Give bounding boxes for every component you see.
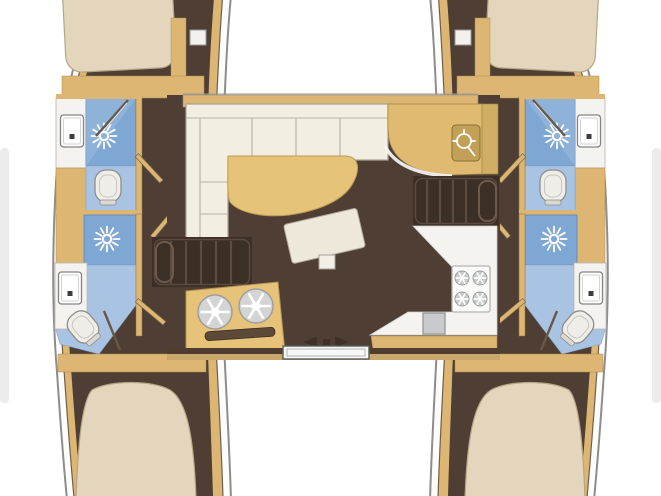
catamaran-floorplan bbox=[0, 0, 661, 496]
floorplan-page bbox=[0, 0, 661, 496]
deck-hatch-icon bbox=[190, 30, 206, 45]
burner-4 bbox=[473, 292, 487, 306]
vanity-sink bbox=[59, 272, 82, 304]
head-divider-wall bbox=[56, 210, 142, 215]
outboard-cabinet bbox=[56, 168, 86, 264]
galley-sink-unit bbox=[186, 282, 285, 352]
chart-desk bbox=[385, 104, 498, 176]
burner-2 bbox=[473, 271, 487, 285]
side-locker bbox=[482, 104, 498, 174]
head-top-wall bbox=[56, 94, 142, 99]
aft-berth bbox=[76, 383, 196, 496]
vanity-sink bbox=[61, 115, 84, 147]
table-leg-base bbox=[319, 255, 335, 269]
helm-panel bbox=[452, 125, 480, 161]
left-scan-artifact bbox=[0, 148, 9, 403]
toilet bbox=[95, 170, 121, 205]
burner-3 bbox=[455, 292, 469, 306]
salon bbox=[152, 94, 500, 360]
stairs-starboard bbox=[413, 176, 499, 226]
round-sink-left bbox=[198, 295, 232, 329]
counter-hatch bbox=[423, 313, 445, 334]
burner-1 bbox=[455, 271, 469, 285]
forward-berth bbox=[62, 0, 177, 73]
round-sink-right bbox=[239, 289, 273, 323]
aft-cabin bbox=[76, 383, 196, 496]
counter-fiddle-rail bbox=[371, 336, 497, 350]
aft-bulkhead bbox=[167, 346, 500, 360]
right-scan-artifact bbox=[652, 148, 661, 403]
sliding-door bbox=[283, 346, 369, 359]
inboard-wall bbox=[136, 214, 142, 336]
stairs-port bbox=[152, 237, 252, 287]
